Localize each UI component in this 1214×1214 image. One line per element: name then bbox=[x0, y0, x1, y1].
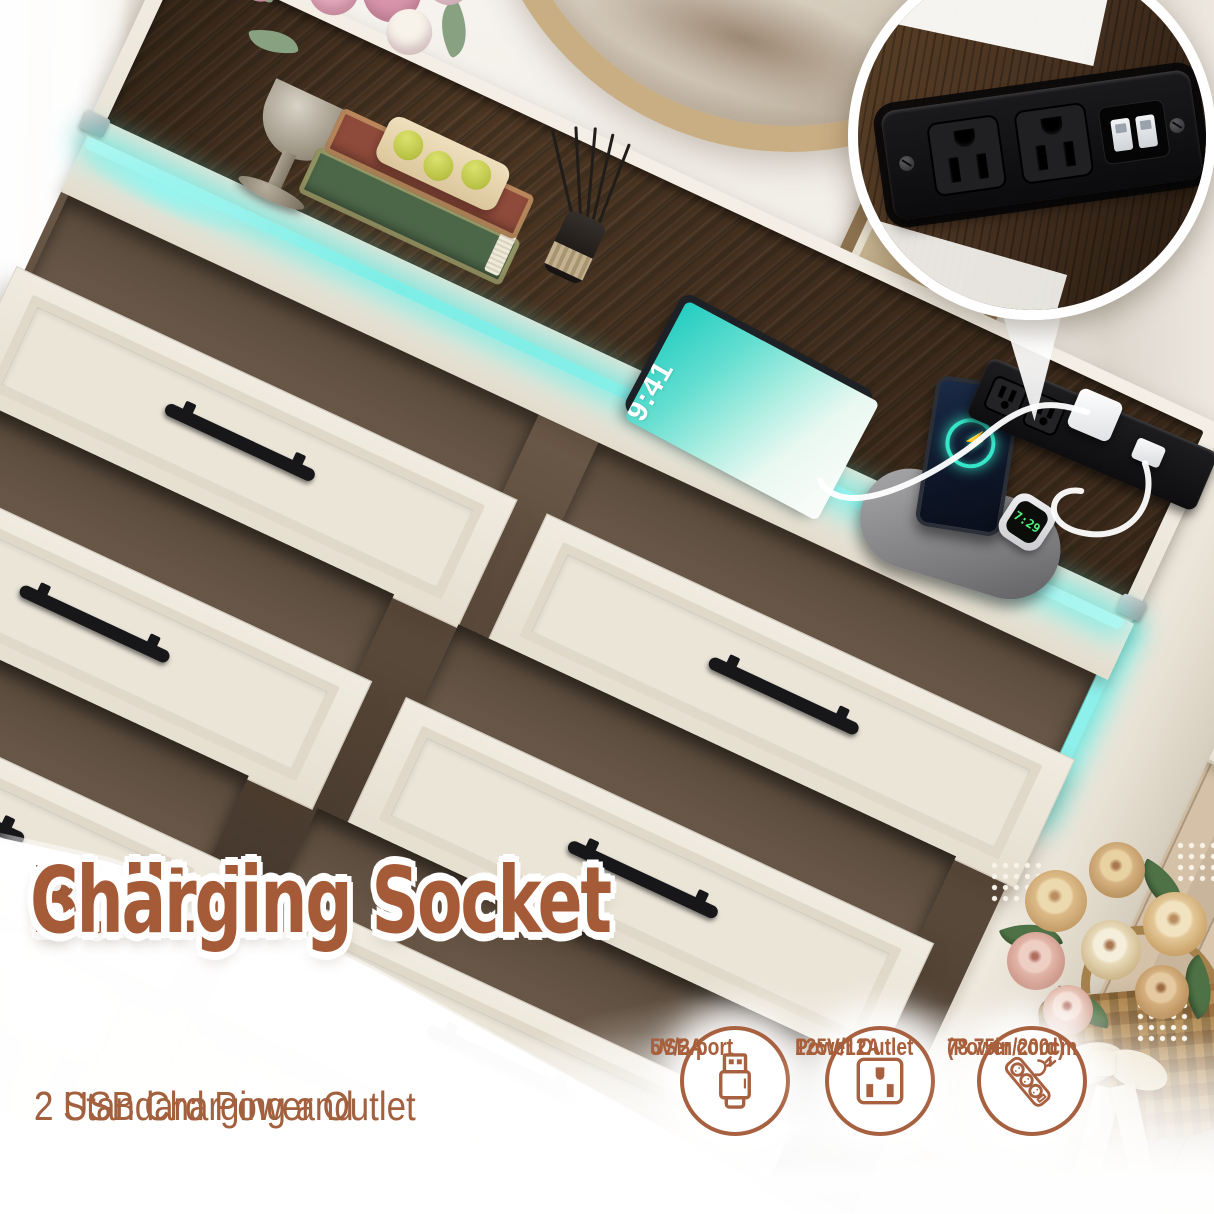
socket-panel bbox=[880, 69, 1204, 221]
rose bbox=[1007, 932, 1065, 990]
flower-basket bbox=[985, 800, 1214, 1214]
outlet-slot bbox=[948, 157, 961, 183]
usb-ports bbox=[1097, 99, 1170, 166]
screw bbox=[1169, 117, 1186, 134]
inset-white-rim bbox=[848, 209, 1067, 320]
screw bbox=[898, 155, 915, 172]
ribbon-knot bbox=[1089, 1050, 1115, 1076]
rose bbox=[1143, 892, 1207, 956]
lightning-bolt-icon: ⚡ bbox=[961, 427, 990, 456]
rose bbox=[1089, 842, 1145, 898]
leaf bbox=[429, 0, 478, 58]
inset-white-rim bbox=[848, 0, 1116, 66]
rose bbox=[1025, 870, 1087, 932]
white-usb-plug bbox=[1130, 437, 1166, 469]
pear bbox=[456, 155, 496, 195]
pear bbox=[388, 125, 428, 165]
ground-hole bbox=[1040, 116, 1063, 136]
usb-port bbox=[1135, 114, 1158, 148]
rose bbox=[1135, 965, 1189, 1019]
leaf bbox=[248, 27, 298, 57]
power-outlet bbox=[926, 114, 1008, 197]
rose bbox=[301, 0, 367, 23]
subheadline-line-2: 2 Standard Power Outlet bbox=[34, 1080, 416, 1133]
power-outlet bbox=[1013, 102, 1095, 185]
watch-clock: 7:29 bbox=[1011, 508, 1043, 535]
rose bbox=[1043, 985, 1093, 1035]
usb-port bbox=[1110, 118, 1133, 152]
rose bbox=[1081, 920, 1141, 980]
outlet-slot bbox=[1063, 141, 1076, 167]
pear bbox=[418, 146, 458, 186]
ground-hole bbox=[953, 128, 976, 148]
babys-breath bbox=[1175, 840, 1214, 884]
leaf bbox=[219, 0, 286, 4]
outlet-slot bbox=[976, 153, 989, 179]
rose bbox=[233, 0, 289, 9]
headline-line-2: Charging Socket bbox=[30, 856, 610, 946]
product-marketing-image: 9:41 ⚡ 7:29 bbox=[0, 0, 1214, 1214]
power-outlet bbox=[982, 374, 1029, 421]
outlet-slot bbox=[1035, 145, 1048, 171]
